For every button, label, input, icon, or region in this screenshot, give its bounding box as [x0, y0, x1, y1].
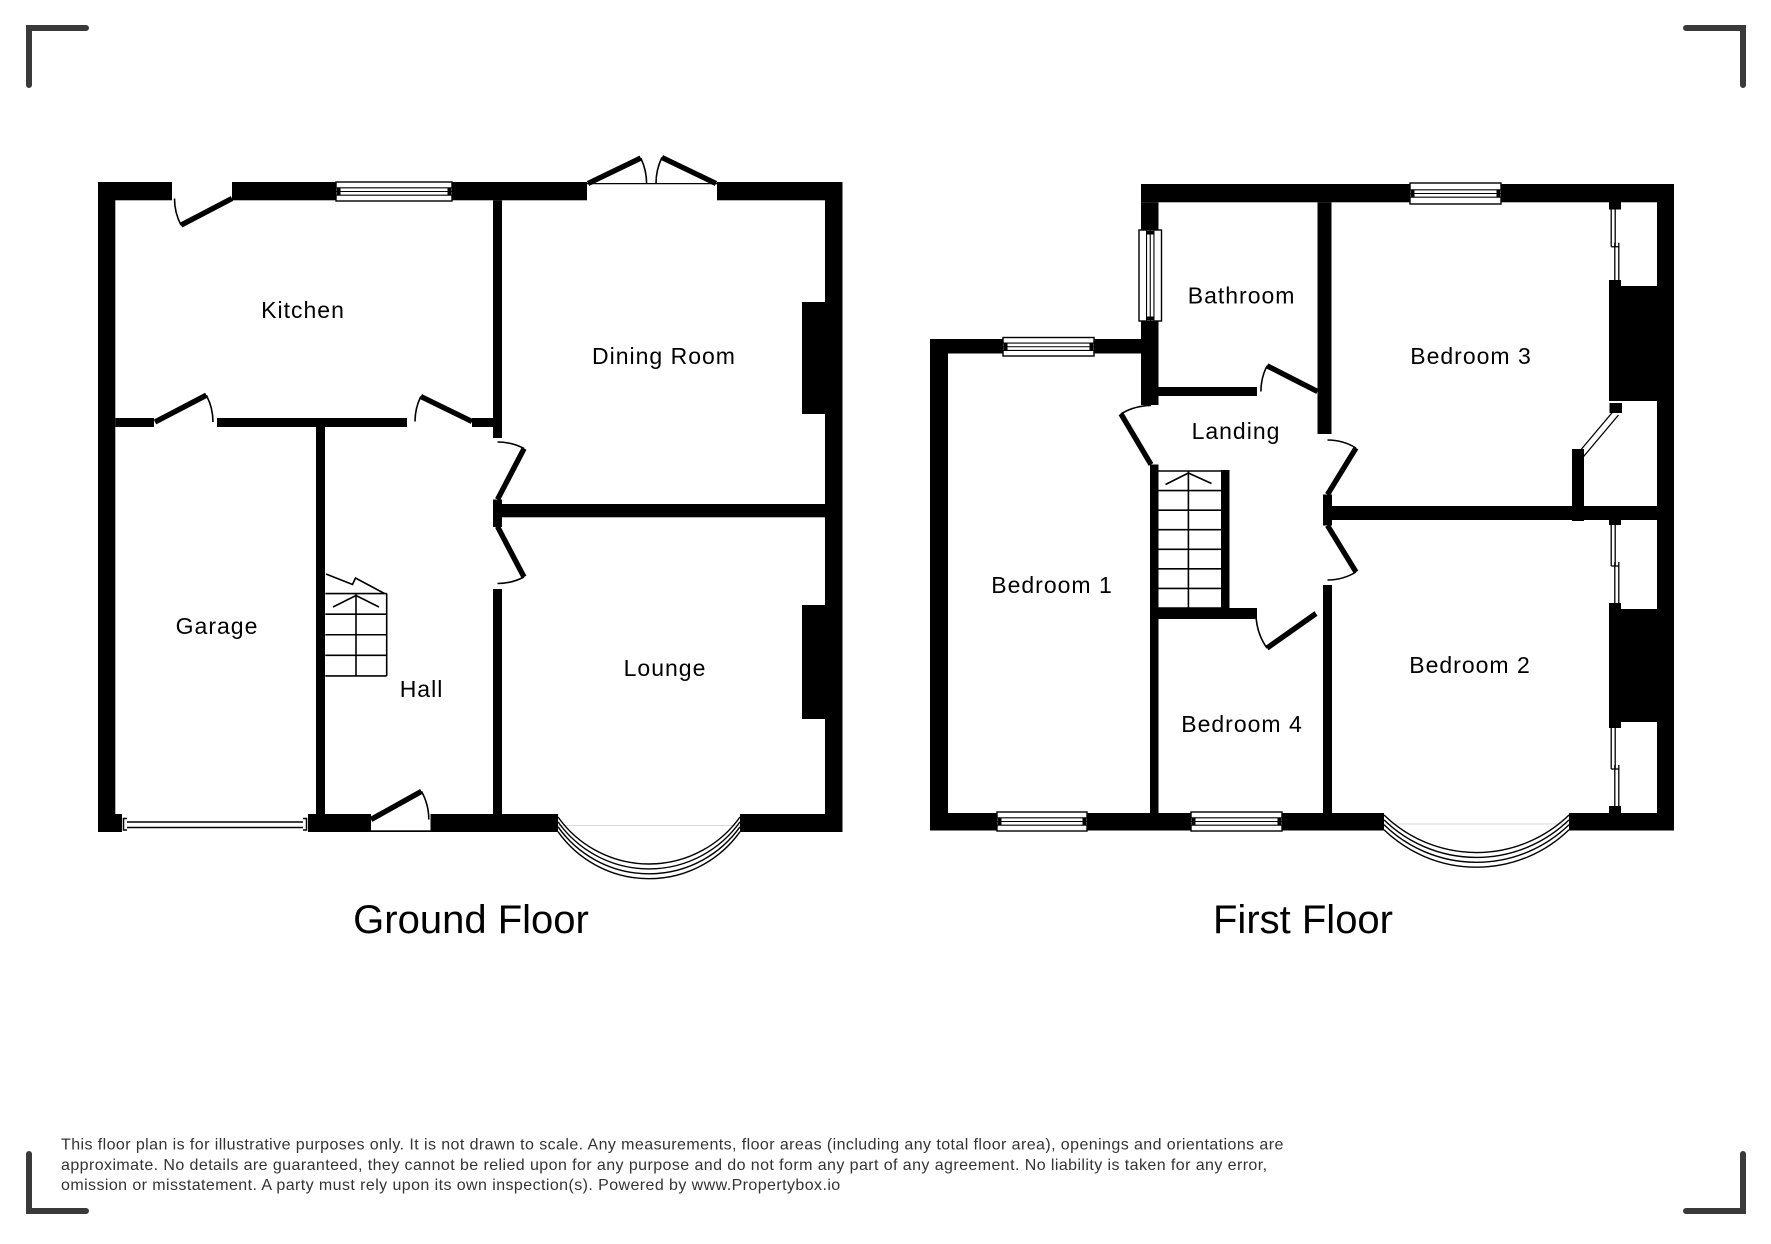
- svg-text:Landing: Landing: [1192, 418, 1281, 444]
- svg-text:Bedroom 4: Bedroom 4: [1181, 711, 1303, 737]
- svg-text:Lounge: Lounge: [624, 655, 707, 681]
- svg-text:Bedroom 2: Bedroom 2: [1409, 652, 1531, 678]
- svg-text:Bathroom: Bathroom: [1188, 283, 1296, 309]
- svg-text:Dining Room: Dining Room: [592, 343, 736, 369]
- svg-text:Hall: Hall: [400, 676, 444, 702]
- svg-text:Kitchen: Kitchen: [261, 297, 345, 323]
- svg-text:Ground Floor: Ground Floor: [353, 898, 589, 942]
- svg-text:approximate. No details are gu: approximate. No details are guaranteed, …: [61, 1157, 1268, 1174]
- svg-text:Garage: Garage: [176, 613, 259, 639]
- svg-text:First Floor: First Floor: [1213, 898, 1393, 942]
- svg-text:Bedroom 3: Bedroom 3: [1410, 343, 1532, 369]
- svg-text:Bedroom 1: Bedroom 1: [991, 572, 1113, 598]
- svg-text:omission or misstatement. A pa: omission or misstatement. A party must r…: [61, 1177, 841, 1194]
- svg-text:This floor plan is for illustr: This floor plan is for illustrative purp…: [61, 1137, 1284, 1154]
